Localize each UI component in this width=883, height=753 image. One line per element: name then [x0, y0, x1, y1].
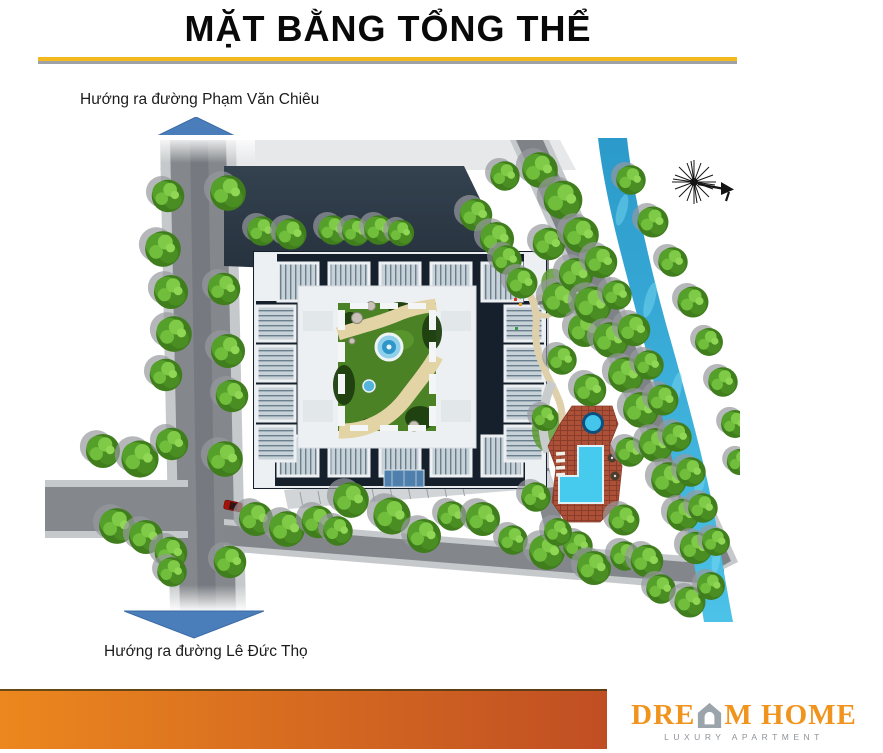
site-plan-image — [40, 135, 740, 627]
slide: MẶT BẰNG TỔNG THỂ Hướng ra đường Phạm Vă… — [0, 0, 883, 753]
logo-word-end: M HOME — [724, 703, 856, 728]
divider-gray-line — [38, 61, 737, 64]
logo-subtitle: LUXURY APARTMENT — [618, 732, 870, 742]
title-divider — [38, 57, 737, 64]
direction-label-top: Hướng ra đường Phạm Văn Chiêu — [80, 91, 319, 109]
logo-wordmark: DRE M HOME — [618, 703, 870, 728]
house-icon — [697, 703, 722, 728]
courtyard-garden — [333, 302, 442, 433]
direction-label-bottom: Hướng ra đường Lê Đức Thọ — [104, 643, 308, 661]
arrow-down-icon — [124, 610, 264, 639]
logo-word-start: DRE — [631, 703, 695, 728]
page-title: MẶT BẰNG TỔNG THỂ — [38, 8, 738, 50]
footer-accent-bar — [0, 689, 607, 749]
brand-logo: DRE M HOME LUXURY APARTMENT — [618, 703, 870, 742]
